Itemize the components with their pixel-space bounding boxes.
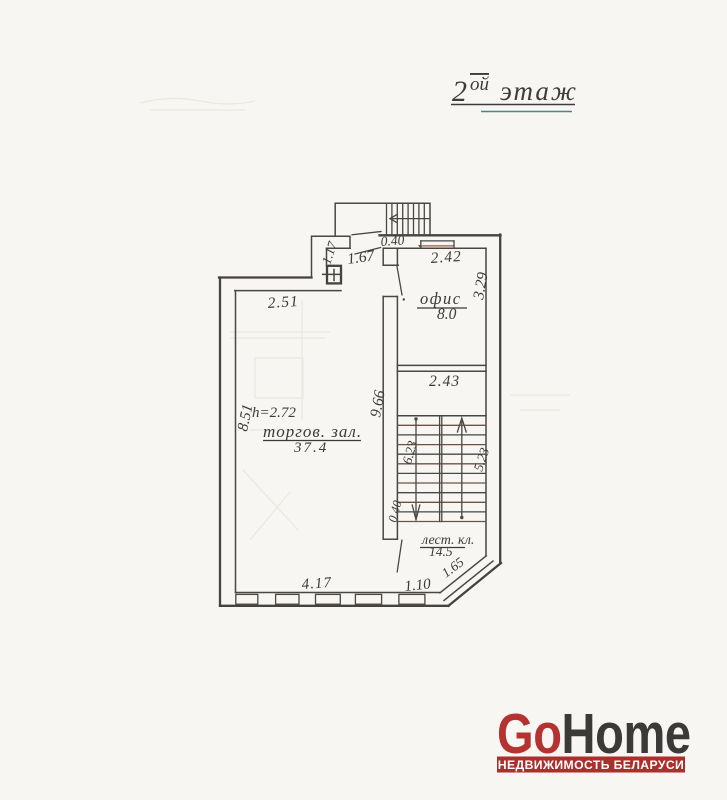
svg-text:37.4: 37.4 (293, 440, 328, 456)
svg-text:1.67: 1.67 (346, 247, 376, 268)
svg-text:ой: ой (470, 74, 490, 95)
svg-text:2.43: 2.43 (429, 373, 460, 390)
svg-text:h=2.72: h=2.72 (252, 405, 296, 421)
svg-text:0.40: 0.40 (380, 232, 405, 249)
svg-text:этаж: этаж (500, 76, 578, 106)
svg-text:2.42: 2.42 (430, 248, 462, 267)
svg-text:8.0: 8.0 (437, 306, 457, 323)
svg-text:14.5: 14.5 (429, 544, 453, 559)
svg-text:2: 2 (452, 75, 467, 108)
svg-text:4.17: 4.17 (301, 575, 333, 593)
svg-text:6.23: 6.23 (399, 439, 420, 466)
svg-text:НЕДВИЖИМОСТЬ БЕЛАРУСИ: НЕДВИЖИМОСТЬ БЕЛАРУСИ (498, 758, 684, 772)
svg-text:1.10: 1.10 (404, 576, 432, 595)
svg-text:0.40: 0.40 (385, 498, 404, 523)
svg-text:3.29: 3.29 (470, 271, 492, 302)
svg-text:1.17: 1.17 (319, 239, 340, 266)
svg-text:9.66: 9.66 (367, 389, 388, 419)
svg-text:5.23: 5.23 (471, 446, 493, 473)
svg-text:2.51: 2.51 (267, 293, 299, 312)
svg-text:торгов. зал.: торгов. зал. (263, 422, 362, 441)
